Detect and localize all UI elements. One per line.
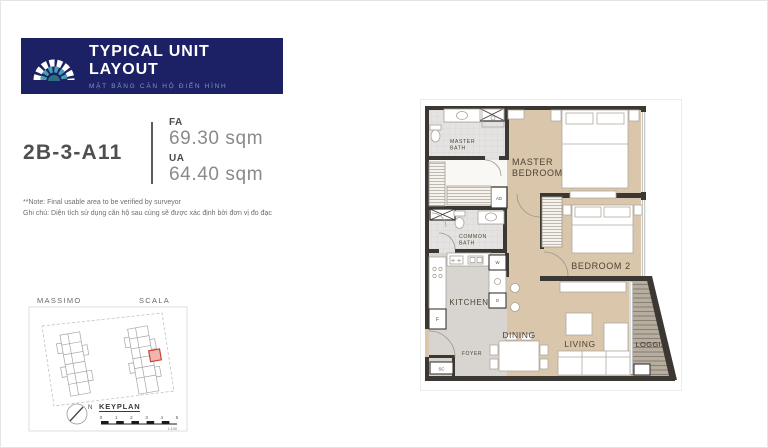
scale-tick: 0 [100, 415, 103, 420]
label-common-bath-2: BATH [459, 241, 475, 247]
label-fridge: F [436, 317, 439, 323]
keyplan: MASSIMO SCALA [27, 293, 191, 440]
bedroom2-bed [563, 205, 642, 253]
tower-label-massimo: MASSIMO [37, 296, 82, 305]
page-title: TYPICAL UNIT LAYOUT [89, 43, 283, 79]
note-line-en: **Note: Final usable area to be verified… [23, 197, 272, 208]
tower-label-scala: SCALA [139, 296, 170, 305]
label-dining: DINING [502, 330, 535, 340]
scale-tick: 4 [161, 415, 164, 420]
scale-bar: 0 1 2 3 4 5 1:100 [100, 415, 179, 431]
note-line-vi: Ghi chú: Diện tích sử dụng căn hộ sau cù… [23, 208, 272, 219]
keyplan-title: KEYPLAN [99, 402, 140, 411]
unit-layout-sheet: TYPICAL UNIT LAYOUT MẶT BẰNG CĂN HỘ ĐIỂN… [0, 0, 768, 448]
fa-label: FA [169, 117, 263, 128]
scale-tick: 3 [145, 415, 148, 420]
highlighted-unit [149, 349, 162, 362]
unit-info: 2B-3-A11 FA 69.30 sqm UA 64.40 sqm [23, 117, 263, 189]
header-banner: TYPICAL UNIT LAYOUT MẶT BẰNG CĂN HỘ ĐIỂN… [21, 38, 283, 94]
label-master-bedroom-1: MASTER [512, 157, 553, 167]
label-master-bath-1: MASTER [450, 139, 475, 145]
page-subtitle: MẶT BẰNG CĂN HỘ ĐIỂN HÌNH [89, 83, 283, 90]
banner-text: TYPICAL UNIT LAYOUT MẶT BẰNG CĂN HỘ ĐIỂN… [89, 43, 283, 90]
north-compass-icon: N [67, 404, 92, 424]
label-living: LIVING [564, 339, 595, 349]
label-dryer: D [496, 298, 499, 303]
massimo-footprint [55, 331, 95, 397]
keyplan-frame [29, 307, 187, 431]
north-label: N [88, 405, 92, 411]
scale-tick: 2 [130, 415, 133, 420]
label-bedroom2: BEDROOM 2 [571, 261, 630, 271]
ua-value: 64.40 sqm [169, 164, 263, 186]
note: **Note: Final usable area to be verified… [23, 197, 272, 219]
label-loggia: LOGGIA [635, 340, 666, 349]
scale-ratio: 1:100 [167, 427, 177, 431]
label-master-bath-2: BATH [450, 146, 466, 152]
area-block: FA 69.30 sqm UA 64.40 sqm [169, 117, 263, 189]
scale-tick: 5 [176, 415, 179, 420]
arch-logo-icon [31, 43, 77, 90]
unit-id: 2B-3-A11 [23, 141, 151, 165]
label-kitchen: KITCHEN [449, 298, 488, 307]
vertical-divider [151, 122, 153, 184]
ua-label: UA [169, 153, 263, 164]
floorplan: MASTER BATH MASTER BEDROOM COMMON BATH B… [420, 99, 682, 396]
label-shoe-cabinet: SC [439, 367, 445, 372]
label-master-bedroom-2: BEDROOM [512, 168, 563, 178]
ac-unit-box [634, 364, 650, 375]
label-ad: AD [496, 196, 502, 201]
label-foyer: FOYER [462, 351, 482, 357]
fa-value: 69.30 sqm [169, 128, 263, 150]
label-common-bath-1: COMMON [459, 234, 487, 240]
scale-tick: 1 [115, 415, 118, 420]
